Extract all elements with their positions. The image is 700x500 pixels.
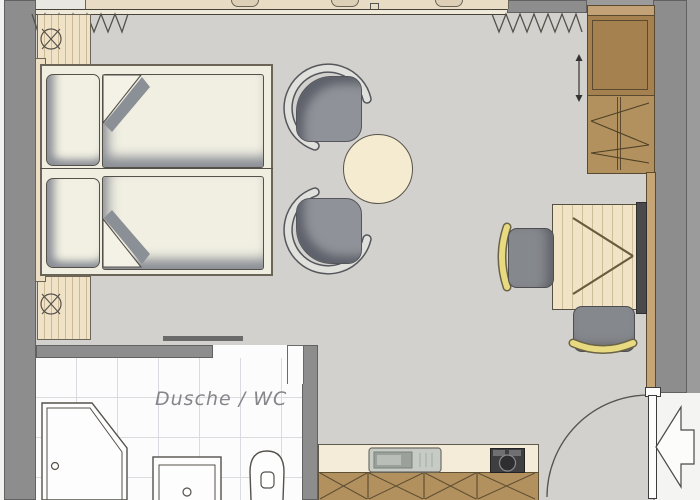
mirror-v-symbol-icon	[552, 204, 637, 308]
door-swing-arc-icon	[545, 391, 655, 500]
door-pocket-niche	[287, 345, 304, 384]
mirror-panel	[636, 202, 647, 314]
armchair-top	[296, 76, 362, 142]
window-handle-icon	[231, 0, 259, 7]
kitchen-sink-icon	[368, 446, 444, 474]
coffee-table	[343, 134, 413, 204]
sliding-arrow-icon	[572, 52, 586, 104]
clothes-rail-zigzag-icon	[587, 95, 653, 172]
window-handle-icon	[331, 0, 359, 7]
bathroom-sliding-door	[163, 336, 243, 341]
bathroom-door-opening	[213, 345, 287, 358]
washbasin-icon	[152, 456, 222, 500]
bedside-post-symbol-icon	[37, 276, 89, 338]
shower-icon	[40, 400, 132, 500]
window-handle-icon	[435, 0, 463, 7]
wardrobe-door-panel	[592, 20, 648, 90]
pillow-top	[46, 74, 100, 166]
kitchen-cabinet-x-icon	[318, 472, 537, 500]
wall-paneling-strip	[646, 172, 656, 395]
bathroom-wall-top	[36, 345, 213, 358]
entry-direction-arrow-icon	[652, 402, 700, 494]
duvet-fold-icon	[100, 72, 162, 136]
bed-divider	[40, 168, 273, 169]
toilet-icon	[246, 448, 288, 500]
pillow-bottom	[46, 178, 100, 268]
wall-left	[4, 0, 36, 500]
desk-chair-left	[508, 228, 554, 288]
bathroom-label: Dusche / WC	[155, 388, 287, 410]
wall-right	[653, 0, 687, 393]
duvet-fold-icon	[100, 206, 162, 270]
curtain-zigzag-right-icon	[490, 11, 586, 37]
window-reveal	[36, 0, 85, 9]
chair-yellow-arc-icon	[568, 338, 638, 358]
bathroom-wall-right	[302, 345, 318, 500]
coffee-machine-icon	[490, 448, 525, 473]
floor-plan: Dusche / WC	[0, 0, 700, 500]
